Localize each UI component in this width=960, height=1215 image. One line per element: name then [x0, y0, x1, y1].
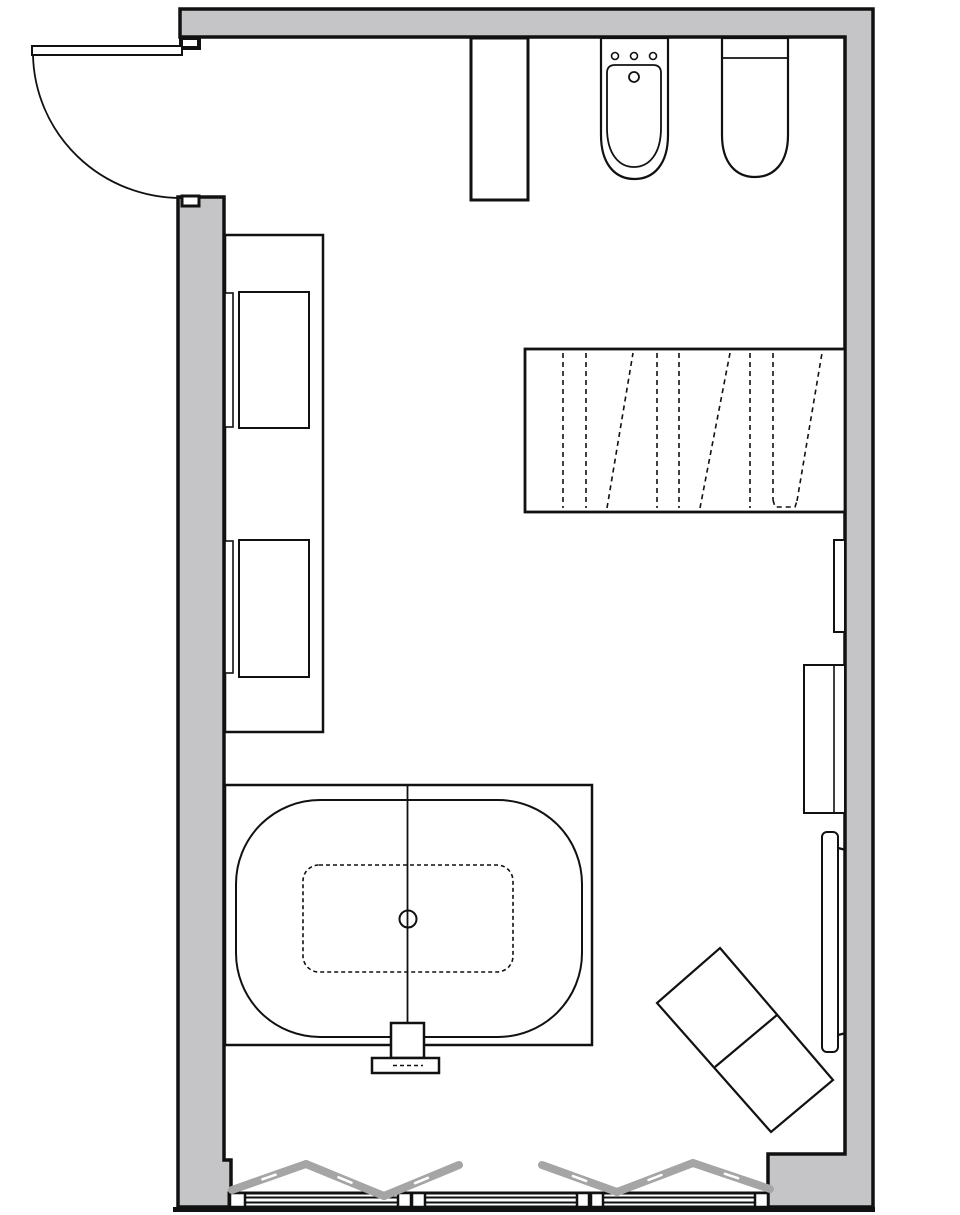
wall-cabinet — [804, 665, 845, 813]
floor-plan-canvas — [0, 0, 960, 1215]
bathtub-rim — [236, 800, 582, 1037]
partition-duct — [471, 38, 528, 200]
floor-plan-page — [0, 0, 960, 1215]
bidet — [601, 38, 668, 179]
storage-cabinet — [225, 235, 323, 732]
wall-shelf — [834, 540, 845, 632]
window-sill — [229, 1193, 768, 1207]
cabinet-door-upper — [239, 292, 309, 428]
cabinet-hinge-strip-upper — [225, 293, 233, 427]
radiator-dashed — [525, 349, 845, 512]
door-leaf — [32, 46, 182, 55]
cabinet-hinge-strip-lower — [225, 541, 233, 673]
sill-frame — [229, 1193, 768, 1207]
toilet — [722, 38, 788, 177]
radiator-outline — [525, 349, 845, 512]
wall-cabinet-body — [804, 665, 845, 813]
bathtub — [225, 785, 592, 1073]
door-jamb-top — [181, 38, 199, 48]
left-wall — [178, 197, 231, 1207]
cabinet-door-lower — [239, 540, 309, 677]
door-jamb-left — [182, 196, 199, 206]
bath-faucet-bar — [372, 1058, 439, 1073]
towel-panel-body — [822, 832, 838, 1052]
bath-faucet-body — [391, 1023, 424, 1058]
